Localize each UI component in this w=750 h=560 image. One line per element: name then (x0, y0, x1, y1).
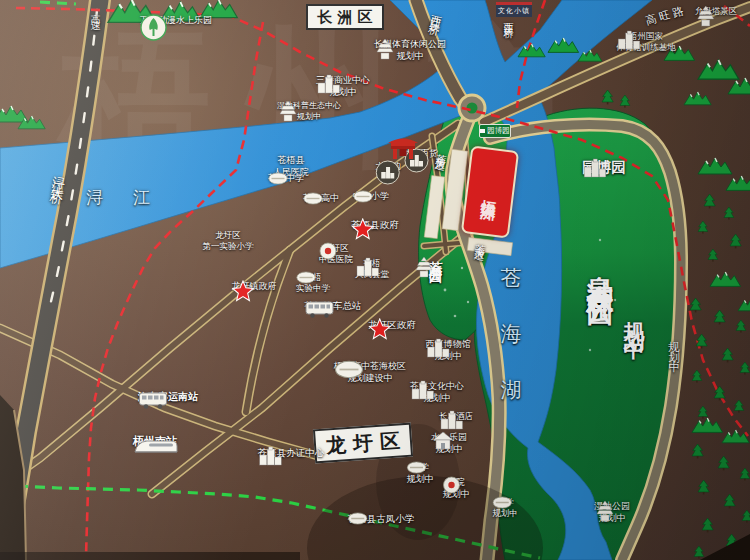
poi-label: 规划中 (297, 112, 321, 122)
label-xunjiang-river: 浔江 (86, 186, 180, 209)
label-xunjiang-bridge: 浔江大桥 (49, 165, 70, 187)
poi-first-experimental-primary: 龙圩区第一实验小学 (203, 230, 254, 251)
project-parcel-hengda-oasis: 恒大绿洲 (461, 145, 519, 238)
poi-daleguo-store: 大乐购 (375, 160, 401, 171)
poi-yunsheng-pagoda-area: 允升塔景区 (695, 5, 738, 16)
poi-planned-primary-school-2: 小学规划中 (492, 496, 518, 518)
label-xijiang-bridge: 西江大桥 (501, 14, 515, 22)
poi-planned-hospital: 医院规划中 (443, 476, 470, 500)
poi-wetland-park: 湿地公园规划中 (594, 500, 630, 524)
label-canghai-avenue: 苍海大道 (475, 235, 490, 245)
poi-canghai-culture-center: 苍海文化中心规划中 (410, 380, 464, 404)
poi-gufeng-primary-school: 苍梧县古凤小学 (348, 512, 415, 524)
poi-canghai-middle-school: 苍海中学 (268, 172, 304, 184)
poi-label: 规划中 (397, 51, 424, 62)
label-huangchong-planned: 规划中 (620, 304, 648, 331)
label-gaosu: 高速 (88, 6, 102, 18)
poi-water-amusement-park: 水上乐园规划中 (431, 431, 467, 455)
poi-cangwu-experimental-middle: 苍梧实验中学 (296, 271, 330, 293)
district-box-changzhou: 长洲区 (306, 4, 384, 30)
label-layer: 长洲区 龙圩区 恒大绿洲 文化小镇 园博园 高速浔江大桥浔江西江三桥西江大桥高旺… (0, 0, 750, 560)
poi-south-coach-station: 汽车客运南站 (138, 390, 198, 403)
poi-label: 规划中 (492, 508, 518, 518)
poi-changzhou-sport-park: 长洲体育休闲公园规划中 (374, 38, 446, 62)
poi-wuzhou-south-railway: 梧州南站 (133, 434, 177, 448)
poi-label: 规划中 (407, 474, 434, 485)
poi-wetland-science-center: 湿地科普生态中心规划中 (277, 100, 341, 121)
poi-center-primary-school: 中心小学 (353, 190, 389, 202)
poi-label: 第一实验小学 (203, 241, 254, 251)
label-gaowang-road: 高旺路 (644, 3, 689, 29)
poi-label: 龙圩区 (215, 230, 241, 240)
map-photo: 梧州市 (0, 0, 750, 560)
poi-xijiang-museum: 西江博物馆规划中 (426, 338, 471, 362)
label-huangchong-forest: 皇冲森林公园 (582, 254, 618, 284)
label-sanqiao-bridge: 西江三桥 (428, 4, 445, 19)
poi-yuanboyuan: 园博园 (582, 158, 626, 176)
poi-longwei-tcm-hospital: 龙圩区中医医院 (319, 242, 353, 264)
poi-certificate-center: 苍梧县办证中心 (258, 446, 325, 458)
poi-cangwu-bus-terminal: 苍梧汽车总站 (305, 299, 362, 311)
poi-changdao-hotel: 长岛酒店 (439, 410, 473, 421)
district-box-longwei: 龙圩区 (313, 423, 413, 464)
poi-longwei-district-gov: 龙圩区政府 (368, 318, 416, 330)
poi-wuzhou-high-canghai: 梧州高中苍海校区规划建设中 (334, 360, 406, 384)
poi-longwei-town-gov: 龙圩镇政府 (232, 280, 277, 292)
label-canghai-lake: 苍海湖 (497, 250, 525, 418)
yuanboyuan-small-sign: 园博园 (479, 124, 511, 138)
poi-cangwu-people-hall: 苍梧人民会堂 (355, 257, 389, 279)
label-ring-road-planned: 规划中 (666, 332, 681, 362)
poi-cangwu-county-gov: 苍梧县政府 (351, 218, 399, 230)
poi-label: 苍梧县 (278, 155, 305, 166)
poi-planned-primary-school: 小学规划中 (407, 461, 434, 485)
poi-label: 实验中学 (296, 283, 330, 293)
poi-national-gym-base: 梧州国家体育馆训练基地 (616, 30, 676, 52)
poi-wanlong-water-park: 万隆动漫水上乐园 (140, 14, 212, 26)
poi-canghai-high-school: 苍海高中 (303, 192, 339, 204)
poi-sanqiao-business-center: 三桥商业中心规划中 (316, 74, 370, 98)
